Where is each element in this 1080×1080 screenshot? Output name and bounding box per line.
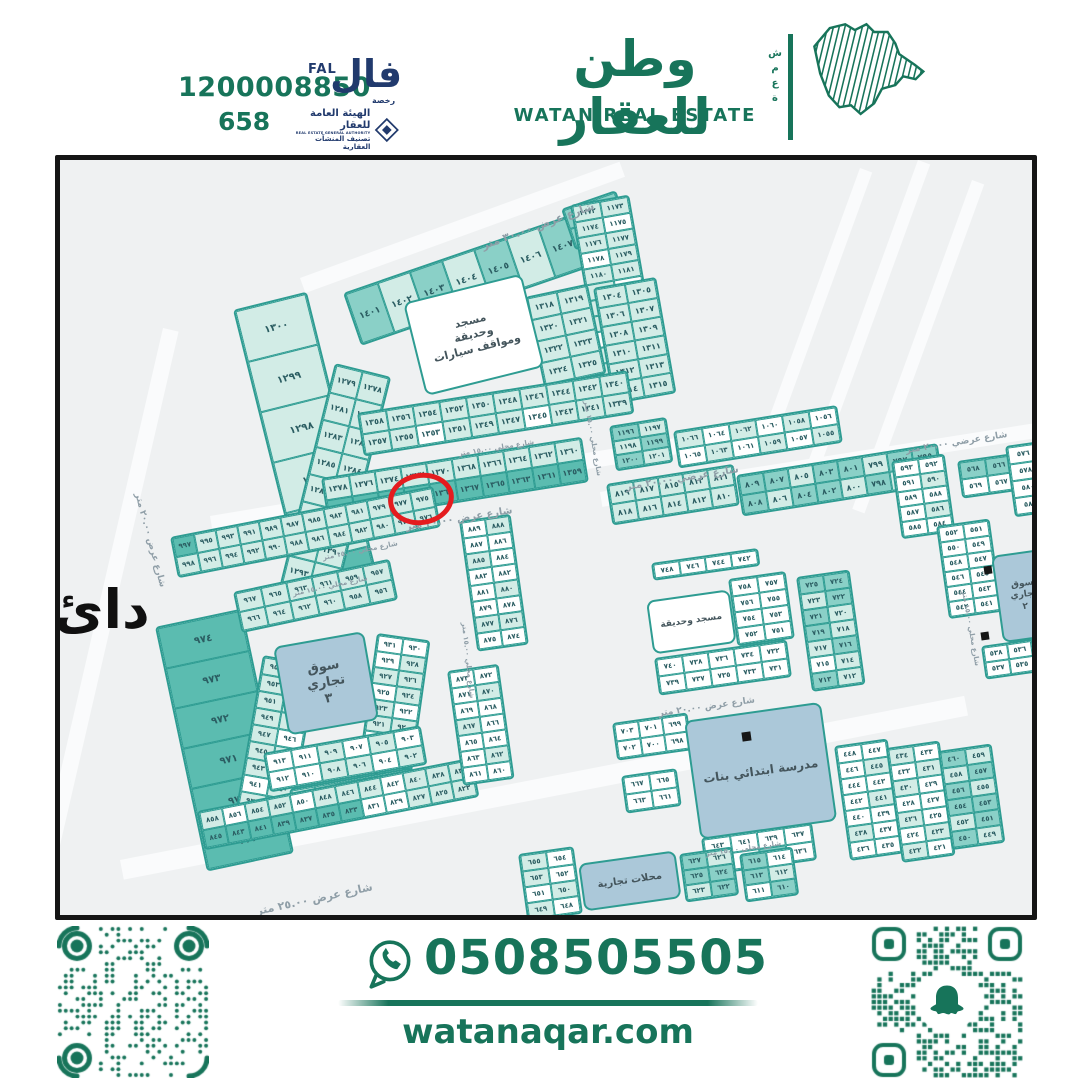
- plot: ١٣٥٥: [389, 426, 419, 450]
- plot: ٩٥٨: [341, 585, 370, 609]
- whatsapp-number: 0508505505: [424, 930, 768, 986]
- plot-block-col-720s: ٧٢٥٧٢٤٧٢٣٧٢٢٧٢١٧٢٠٧١٩٧١٨٧١٧٧١٦٧١٥٧١٤٧١٣٧…: [796, 569, 866, 691]
- plot: ٨١٠: [710, 485, 738, 508]
- flyer-page: 1200008850 658 فال FAL رخصة الهيئة العام…: [0, 0, 1080, 1080]
- plot: ٩١٠: [294, 763, 323, 785]
- plot: ١٣٤٩: [469, 413, 499, 437]
- plot: ٦١٠: [770, 878, 797, 896]
- plot: ٨١٨: [611, 501, 639, 524]
- logo-divider-bar: [788, 34, 793, 140]
- facility-market-3: سوق تجاري ٣: [273, 631, 379, 736]
- plot: ٥٨٥: [902, 519, 929, 537]
- plot: ١٣٦١: [532, 464, 561, 489]
- plot: ١٣١٥: [641, 373, 674, 397]
- plot: ٨٧٥: [477, 630, 503, 649]
- plot: ١٣٣٩: [602, 392, 632, 416]
- plot-block-pairs-750s: ٧٥٨٧٥٧٧٥٦٧٥٥٧٥٤٧٥٣٧٥٢٧٥١: [728, 571, 795, 646]
- plot: ٩٦٢: [290, 596, 319, 620]
- plot: ٦٦١: [651, 787, 679, 807]
- authority-diamond-icon: [374, 115, 400, 145]
- plot: ٥٣٧: [985, 659, 1011, 677]
- plot: ٥٨٢: [1014, 494, 1037, 515]
- plot: ٨٤١: [248, 817, 274, 839]
- plot: ١٣٥٣: [416, 422, 446, 446]
- plot-block-blk-1196: ١١٩٦١١٩٧١١٩٨١١٩٩١٢٠٠١٢٠١: [609, 417, 673, 472]
- plot: ٧٣٣: [736, 662, 764, 682]
- plot: ١٠٥٥: [811, 424, 840, 445]
- plot: ٤٢١: [926, 838, 953, 857]
- plot: ٦٢٢: [710, 878, 737, 896]
- plot: ٨٧٤: [501, 627, 527, 646]
- plot: ٩٦٤: [265, 601, 294, 625]
- plot: ٦١١: [745, 882, 772, 900]
- plot: ٨٦١: [463, 764, 489, 783]
- plot: ٧٣٧: [684, 669, 712, 689]
- plot: ٧٥١: [764, 621, 793, 641]
- street-label: شارع عرض ٢٥.٠٠ متر: [255, 880, 374, 917]
- qr-code-left: [57, 926, 209, 1078]
- plot: ١٣٦٧: [455, 476, 484, 501]
- plot: ٨٦٠: [486, 761, 512, 780]
- plot: ١٣٦٥: [481, 472, 510, 497]
- footer-divider: [338, 1000, 758, 1006]
- plot: ٦٢٣: [685, 882, 712, 900]
- logo-vertical-word: شمعة: [768, 46, 782, 106]
- plot: ٨٣٣: [338, 800, 364, 822]
- facility-shops: محلات تجارية: [578, 850, 682, 911]
- website-url: watanaqar.com: [338, 1012, 758, 1052]
- plot: ٦٦٣: [626, 791, 654, 811]
- plot: ٩٠٤: [371, 750, 400, 772]
- saudi-map-art-icon: [797, 6, 932, 138]
- plot: ٧٤٦: [679, 557, 707, 574]
- plot: ٨٠٢: [815, 480, 843, 503]
- plot: ٤٣٦: [850, 839, 877, 858]
- authority-name-ar: الهيئة العامة للعقار: [290, 108, 370, 131]
- whatsapp-icon: [362, 936, 418, 992]
- plot: ٧٣١: [762, 658, 790, 678]
- plot-block-pairs-880s: ٨٨٩٨٨٨٨٨٧٨٨٦٨٨٥٨٨٤٨٨٣٨٨٢٨٨١٨٨٠٨٧٩٨٧٨٨٧٧٨…: [459, 514, 529, 652]
- plot: ٧٣٥: [710, 666, 738, 686]
- plot: ٨٣١: [361, 795, 387, 817]
- plot: ٦٤٩: [527, 900, 555, 919]
- plot: ٧٠٢: [617, 738, 643, 758]
- fal-logo: فال: [330, 52, 402, 96]
- plot: ٨٣٩: [271, 813, 297, 835]
- plot: ٨٣٧: [293, 808, 319, 830]
- plot: ٨٤٣: [225, 821, 251, 843]
- plot: ٨٢٩: [383, 791, 409, 813]
- plot: ٨٣٥: [316, 804, 342, 826]
- plot: ١٢٠١: [642, 447, 671, 465]
- plot: ٨٠٦: [766, 488, 794, 511]
- plot: ٩٠٢: [396, 745, 425, 767]
- plot: ٩٦٦: [239, 607, 268, 631]
- plot: ٤٥٠: [951, 828, 978, 847]
- plot: ٩٥٦: [366, 580, 395, 604]
- plot-block-col-edge-570s: ٥٧٦٥٧٨٥٨٠٥٨٢: [1005, 441, 1037, 517]
- plot: ١٠٦١: [731, 437, 760, 458]
- fal-logo-en: FAL: [308, 62, 337, 77]
- plot: ٨٢٥: [429, 782, 455, 804]
- plot: ١٠٦٥: [678, 445, 707, 466]
- building-marker: [741, 731, 751, 741]
- plot: ١٣٤٥: [522, 405, 552, 429]
- plot: ١٣٥١: [442, 418, 472, 442]
- plot: ٥٣٥: [1009, 656, 1035, 674]
- plot: ١٣٥٧: [362, 430, 392, 454]
- building-marker: [980, 631, 989, 640]
- watan-logo-english: WATAN REAL ESTATE: [500, 105, 770, 126]
- plot: ٥٧٦: [1007, 444, 1037, 465]
- partial-road-label: دائ: [55, 578, 150, 641]
- plot: ٩٠٨: [320, 759, 349, 781]
- plot: ٤٤٩: [976, 825, 1003, 844]
- plot: ٦٤٨: [553, 896, 581, 915]
- snapchat-ghost-icon: [925, 980, 969, 1024]
- classification-number: 658: [218, 107, 270, 136]
- plot-block-pairs-610s: ٦١٥٦١٤٦١٣٦١٢٦١١٦١٠: [739, 846, 799, 902]
- authority-logo: الهيئة العامة للعقار REAL ESTATE GENERAL…: [290, 108, 400, 151]
- plot: ٥٣٣: [1033, 653, 1037, 671]
- plot: ٩٦٠: [316, 591, 345, 615]
- plot: ٧٣٩: [659, 673, 687, 693]
- plot-block-blk-660s: ٦٦٧٦٦٥٦٦٣٦٦١: [621, 768, 682, 813]
- plot: ٧٩٨: [865, 472, 893, 495]
- plot: ٩٠٦: [345, 754, 374, 776]
- facility-mosque-garden: مسجد وحديقة: [646, 589, 737, 654]
- plot-map: دائ١٤٠١١٤٠٢١٤٠٣١٤٠٤١٤٠٥١٤٠٦١٤٠٧١٣٩٦١٣٩٧١…: [55, 155, 1037, 920]
- facility-girls-school: مدرسة ابتدائي بنات: [684, 702, 837, 840]
- plot: ٥٣٤: [1031, 638, 1037, 656]
- watan-logo-arabic: وطن للعقار: [500, 30, 770, 146]
- plot: ١٣٦٣: [506, 468, 535, 493]
- plot: ١٢٠٠: [616, 451, 645, 469]
- fal-license-word: رخصة: [372, 96, 395, 105]
- plot: ١٣٤٣: [549, 401, 579, 425]
- plot: ١٣٥٩: [558, 460, 587, 485]
- plot: ٧٥٢: [737, 624, 766, 644]
- plot: ٨١٢: [685, 489, 713, 512]
- plot: ٤٢٢: [902, 841, 929, 860]
- plot: ٨٢٧: [406, 786, 432, 808]
- plot: ٥٧٨: [1010, 460, 1037, 481]
- plot: ٨٠٠: [840, 476, 868, 499]
- plot: ١٠٥٧: [785, 428, 814, 449]
- plot: ٨١٦: [636, 497, 664, 520]
- plot: ٨٠٤: [791, 484, 819, 507]
- building-marker: [983, 565, 992, 574]
- plot: ١٠٦٣: [705, 441, 734, 462]
- authority-sub: تصنيف المنشآت العقارية: [290, 135, 370, 151]
- plot: ٤٣٥: [874, 836, 901, 855]
- plot-block-pairs-650s: ٦٥٥٦٥٤٦٥٣٦٥٢٦٥١٦٥٠٦٤٩٦٤٨: [518, 846, 583, 920]
- street-label: شارع عرض ٢٠.٠٠ متر: [132, 492, 167, 588]
- plot: ١٣٤٧: [496, 409, 526, 433]
- plot: ٩١٢: [268, 768, 297, 790]
- plot: ٨١٤: [661, 493, 689, 516]
- plot: ٧١٣: [812, 670, 839, 689]
- plot: ٥٨٠: [1012, 477, 1037, 498]
- plot: ٧٤٤: [705, 554, 733, 571]
- plot: ٧١٢: [836, 667, 863, 686]
- plot: ٧٠٠: [640, 735, 666, 755]
- facility-market-2: سوق تجاري ٢: [991, 548, 1037, 643]
- plot: ١٠٥٩: [758, 433, 787, 454]
- plot: ٧٤٨: [653, 561, 681, 578]
- plot: ٧٤٢: [730, 550, 758, 567]
- plot: ٥٦٩: [962, 476, 990, 496]
- plot: ٨٤٥: [203, 826, 229, 848]
- plot: ٨٠٨: [741, 492, 769, 515]
